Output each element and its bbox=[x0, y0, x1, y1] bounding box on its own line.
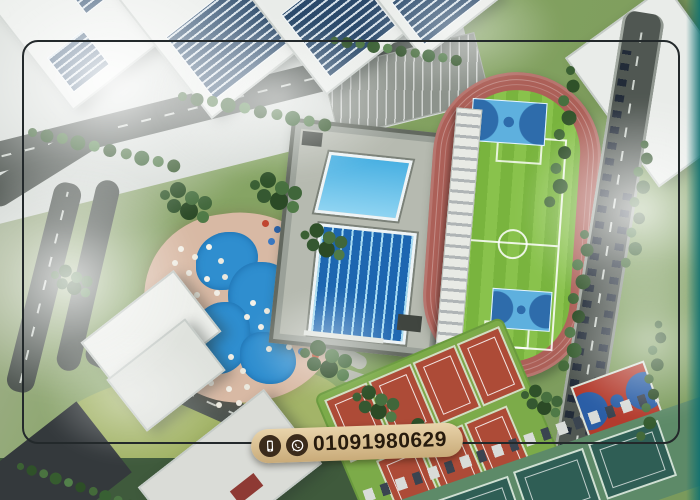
mobile-phone-icon bbox=[259, 435, 282, 458]
hard-tennis-court bbox=[513, 448, 602, 500]
aerial-render-sports-compound: 01091980629 bbox=[0, 0, 700, 500]
tree-cluster bbox=[17, 463, 24, 470]
red-rooftop-item bbox=[230, 473, 263, 500]
whatsapp-icon bbox=[286, 434, 309, 457]
frame-border bbox=[22, 40, 680, 444]
teal-edge-strip bbox=[686, 0, 700, 500]
contact-number: 01091980629 bbox=[313, 428, 448, 457]
